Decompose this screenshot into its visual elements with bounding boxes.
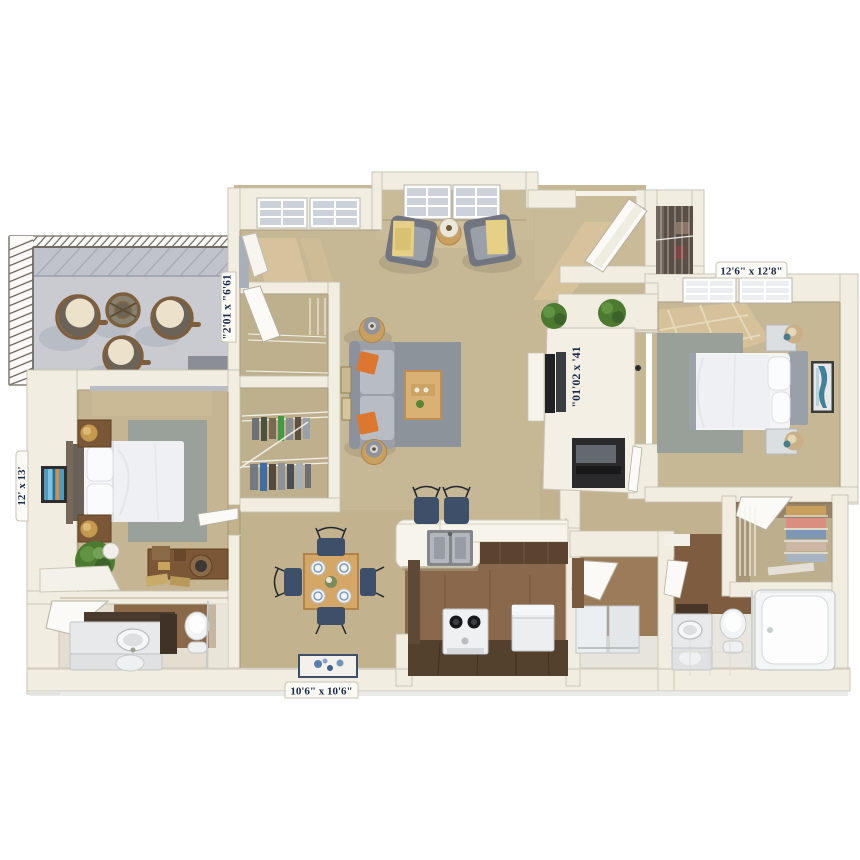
svg-text:12'6" x 12'8": 12'6" x 12'8": [720, 266, 782, 278]
svg-text:10'6" x 10'6": 10'6" x 10'6": [290, 686, 352, 698]
svg-text:"01'02 x '41: "01'02 x '41: [569, 346, 583, 407]
svg-text:12' x 13': 12' x 13': [16, 466, 28, 505]
svg-text:"2'01 x "6'61: "2'01 x "6'61: [222, 274, 234, 339]
